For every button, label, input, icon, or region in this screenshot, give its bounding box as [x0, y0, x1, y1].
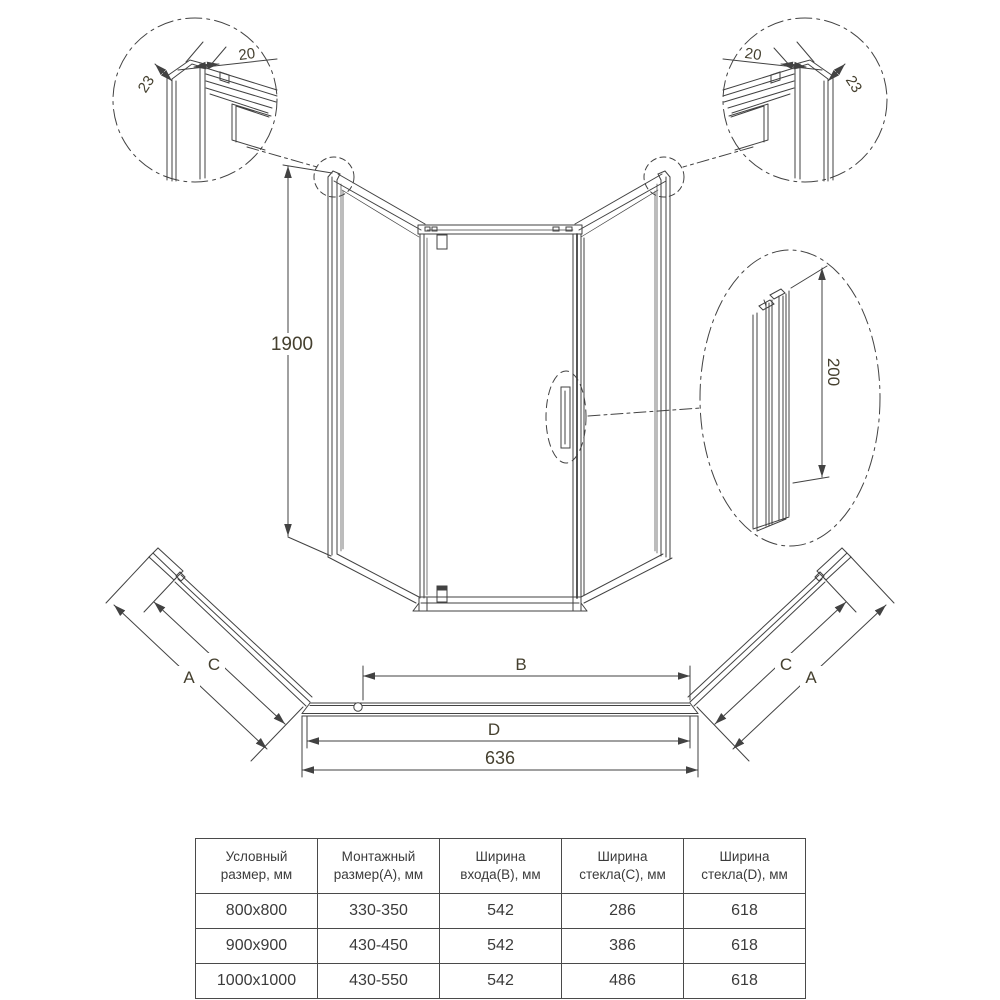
detail-ellipse-handle-profile: 200	[588, 250, 880, 546]
table-cell: 1000x1000	[196, 964, 318, 999]
door-hinge-top	[437, 235, 447, 249]
plan-view	[149, 548, 851, 716]
table-cell: 286	[562, 894, 684, 929]
table-row: 800x800 330-350 542 286 618	[196, 894, 806, 929]
table-header-cell: Ширина стекла(D), мм	[684, 839, 806, 894]
table-cell: 542	[440, 929, 562, 964]
height-dimension-label: 1900	[271, 334, 313, 355]
detail-tr-width-label: 20	[744, 45, 763, 64]
table-cell: 618	[684, 964, 806, 999]
technical-drawing-svg: 23 20 23 20	[0, 0, 1000, 820]
door-hinge-bottom	[437, 586, 447, 602]
spec-table: Условный размер, мм Монтажный размер(A),…	[195, 838, 806, 999]
detail-tl-width-label: 20	[237, 45, 256, 64]
detail-leader-lines	[247, 147, 753, 167]
table-header-cell: Ширина входа(B), мм	[440, 839, 562, 894]
plan-dimensions: A C A C B D 636	[106, 556, 894, 777]
table-cell: 800x800	[196, 894, 318, 929]
door-pivot-marker	[354, 703, 362, 711]
table-cell: 618	[684, 894, 806, 929]
table-cell: 430-550	[318, 964, 440, 999]
plan-mount-a-left-label: A	[183, 668, 195, 687]
dimension-height-1900: 1900	[263, 165, 332, 556]
table-cell: 618	[684, 929, 806, 964]
elevation-view	[314, 157, 684, 611]
detail-tl-depth-label: 23	[135, 73, 158, 96]
table-cell: 542	[440, 964, 562, 999]
table-cell: 542	[440, 894, 562, 929]
table-header-row: Условный размер, мм Монтажный размер(A),…	[196, 839, 806, 894]
shower-enclosure-technical-drawing: 23 20 23 20	[0, 0, 1000, 1000]
table-header-cell: Ширина стекла(C), мм	[562, 839, 684, 894]
plan-panel-left	[149, 548, 312, 706]
handle-profile-height-label: 200	[824, 358, 843, 386]
plan-panel-right	[688, 548, 851, 706]
plan-glass-c-right-label: C	[780, 655, 792, 674]
plan-glass-d-label: D	[488, 720, 500, 739]
table-row: 900x900 430-450 542 386 618	[196, 929, 806, 964]
plan-glass-c-left-label: C	[208, 655, 220, 674]
table-row: 1000x1000 430-550 542 486 618	[196, 964, 806, 999]
table-header-cell: Условный размер, мм	[196, 839, 318, 894]
plan-base-width-label: 636	[485, 748, 515, 768]
table-header-cell: Монтажный размер(A), мм	[318, 839, 440, 894]
detail-circle-top-left: 23 20	[113, 18, 277, 182]
detail-tr-depth-label: 23	[842, 73, 865, 96]
plan-entry-b-label: B	[515, 655, 526, 674]
plan-mount-a-right-label: A	[805, 668, 817, 687]
door-handle	[546, 371, 586, 463]
table-cell: 900x900	[196, 929, 318, 964]
table-cell: 330-350	[318, 894, 440, 929]
detail-circle-top-right: 23 20	[723, 18, 887, 182]
table-cell: 386	[562, 929, 684, 964]
table-cell: 486	[562, 964, 684, 999]
table-cell: 430-450	[318, 929, 440, 964]
